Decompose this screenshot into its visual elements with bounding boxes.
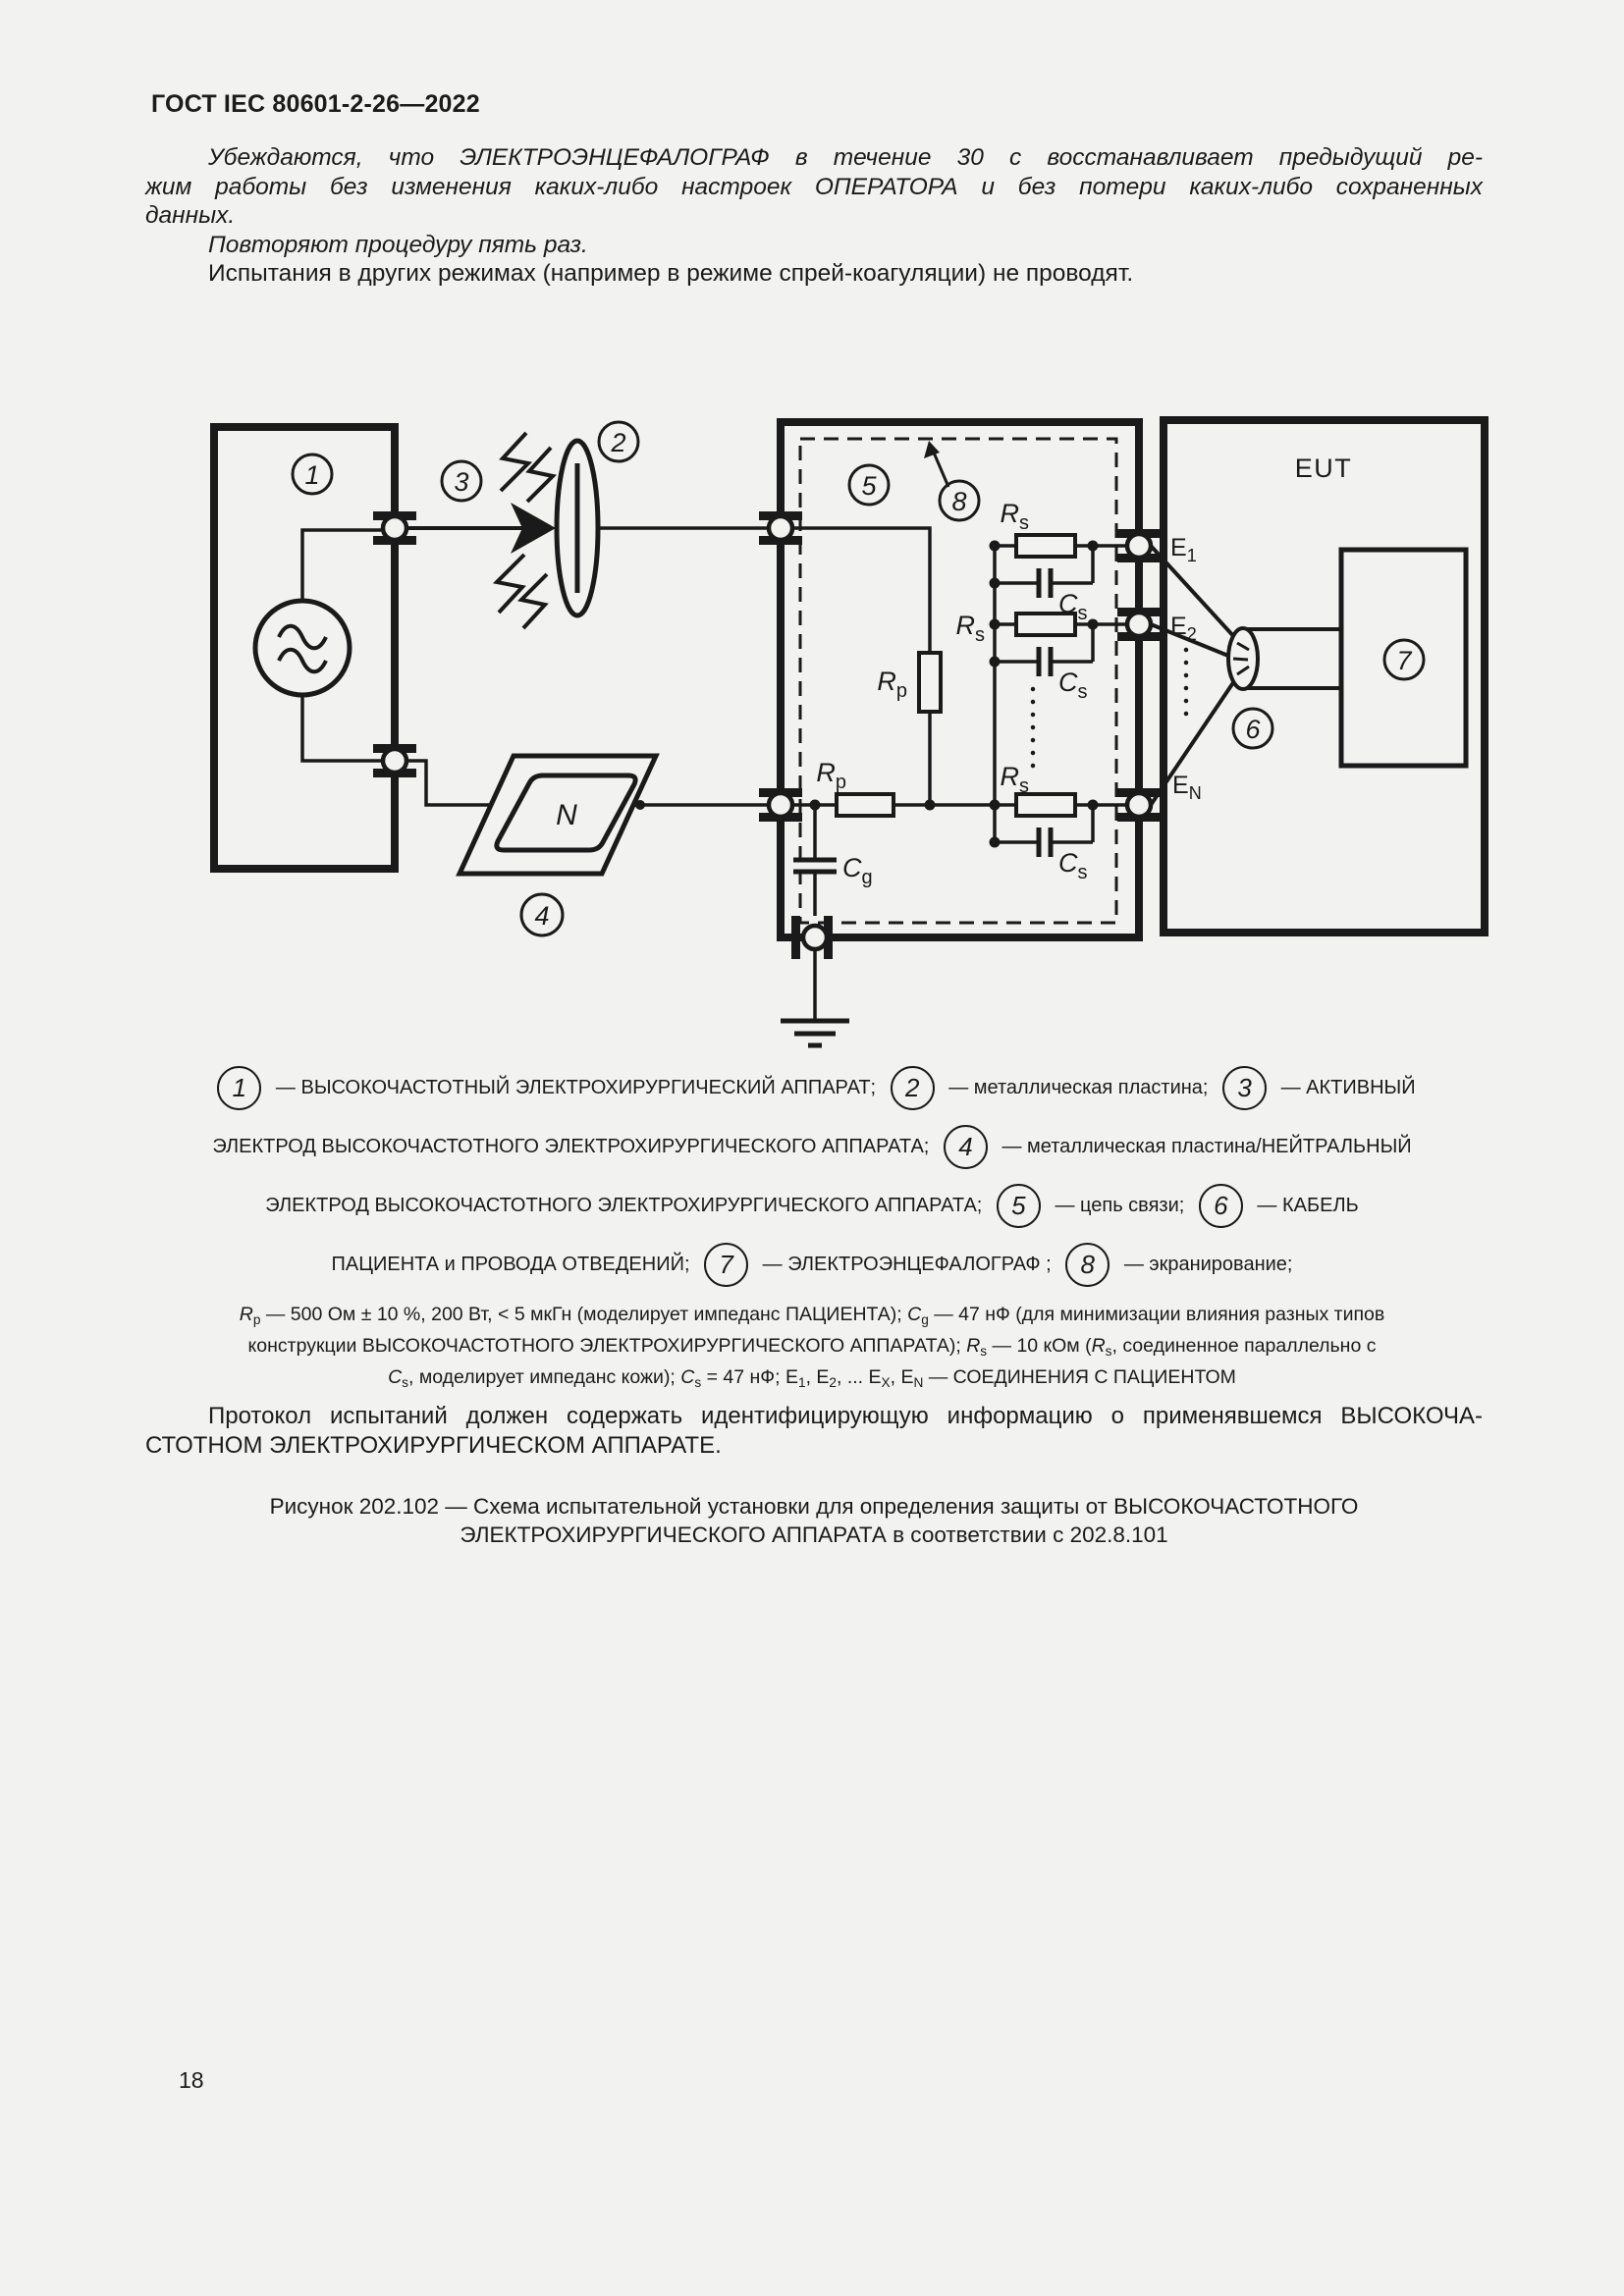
capacitor-cs-icon: [1039, 828, 1051, 857]
parameters-line: Cs, моделирует импеданс кожи); Cs = 47 н…: [137, 1364, 1487, 1396]
capacitor-cg-icon: [793, 860, 837, 872]
rs-label: Rs: [1001, 762, 1030, 797]
legend-callout-4: 4: [944, 1125, 988, 1169]
legend-callout-3: 3: [1222, 1066, 1267, 1110]
parameters-line: Rp — 500 Ом ± 10 %, 200 Вт, < 5 мкГн (мо…: [137, 1302, 1487, 1333]
svg-text:4: 4: [534, 901, 549, 931]
cg-ground-branch: [781, 805, 849, 1045]
legend-callout-2: 2: [891, 1066, 935, 1110]
protocol-paragraph: Протокол испытаний должен содержать иден…: [145, 1402, 1483, 1461]
rs-label: Rs: [1001, 499, 1030, 534]
active-electrode-arrow-icon: [406, 503, 556, 554]
legend-row: ЭЛЕКТРОД ВЫСОКОЧАСТОТНОГО ЭЛЕКТРОХИРУРГИ…: [59, 1176, 1565, 1235]
legend-callout-5: 5: [997, 1184, 1041, 1228]
feedthrough-capacitor-icon: [791, 916, 833, 959]
legend-callout-8: 8: [1065, 1243, 1110, 1287]
ac-source-icon: [255, 601, 350, 695]
wire: [792, 528, 930, 653]
callout-4: 4: [521, 894, 563, 935]
patient-cable-icon: [1151, 546, 1341, 805]
document-page: ГОСТ IEC 80601-2-26—2022 Убеждаются, что…: [0, 0, 1624, 2296]
legend-text: — АКТИВНЫЙ: [1275, 1077, 1416, 1099]
eut-label: EUT: [1295, 454, 1353, 483]
svg-text:2: 2: [610, 428, 625, 457]
capacitor-cs-icon: [1039, 568, 1051, 598]
eut-box: [1164, 420, 1485, 933]
callout-8: 8: [940, 481, 979, 520]
paragraph-line: Протокол испытаний должен содержать иден…: [145, 1402, 1483, 1431]
e2-label: E2: [1170, 613, 1197, 644]
callout-2: 2: [599, 422, 638, 461]
rp-label: Rp: [877, 667, 907, 702]
callout-3: 3: [442, 461, 481, 501]
legend-text: ЭЛЕКТРОД ВЫСОКОЧАСТОТНОГО ЭЛЕКТРОХИРУРГИ…: [265, 1195, 988, 1217]
svg-text:8: 8: [951, 487, 966, 516]
shield-pointer-arrow: [924, 441, 948, 487]
legend-row: 1 — ВЫСОКОЧАСТОТНЫЙ ЭЛЕКТРОХИРУРГИЧЕСКИЙ…: [59, 1058, 1565, 1117]
callout-7: 7: [1384, 640, 1424, 679]
figure-caption: Рисунок 202.102 — Схема испытательной ус…: [145, 1492, 1483, 1549]
legend-row: ЭЛЕКТРОД ВЫСОКОЧАСТОТНОГО ЭЛЕКТРОХИРУРГИ…: [59, 1117, 1565, 1176]
resistor-rp-horizontal: [837, 794, 893, 816]
legend-text: — цепь связи;: [1050, 1195, 1190, 1217]
ground-icon: [781, 1021, 849, 1045]
callout-5: 5: [849, 465, 889, 505]
resistor-rp-vertical: [919, 653, 941, 712]
en-label: EN: [1172, 772, 1202, 803]
n-plate-label: N: [556, 799, 577, 831]
legend-text: — экранирование;: [1118, 1254, 1292, 1276]
rs-label: Rs: [956, 611, 986, 646]
caption-line: Рисунок 202.102 — Схема испытательной ус…: [145, 1492, 1483, 1521]
callout-1: 1: [293, 454, 332, 494]
cs-label: Cs: [1058, 667, 1088, 703]
wire: [406, 761, 491, 805]
metal-plate-icon: [557, 441, 598, 615]
cs-label: Cs: [1058, 848, 1088, 883]
legend-callout-6: 6: [1199, 1184, 1243, 1228]
callout-6: 6: [1233, 709, 1272, 748]
legend-callout-1: 1: [217, 1066, 261, 1110]
legend-text: — ЭЛЕКТРОЭНЦЕФАЛОГРАФ ;: [757, 1254, 1056, 1276]
component-parameters: Rp — 500 Ом ± 10 %, 200 Вт, < 5 мкГн (мо…: [137, 1302, 1487, 1395]
svg-text:1: 1: [304, 460, 319, 490]
junction-dot: [635, 800, 645, 810]
legend-text: — ВЫСОКОЧАСТОТНЫЙ ЭЛЕКТРОХИРУРГИЧЕСКИЙ А…: [270, 1077, 881, 1099]
e1-label: E1: [1170, 534, 1197, 565]
resistor-rs: [1016, 535, 1075, 557]
rp-label: Rp: [816, 758, 846, 793]
legend-callout-7: 7: [704, 1243, 748, 1287]
legend-row: ПАЦИЕНТА и ПРОВОДА ОТВЕДЕНИЙ; 7 — ЭЛЕКТР…: [59, 1235, 1565, 1294]
resistor-rs: [1016, 794, 1075, 816]
svg-text:3: 3: [454, 467, 468, 497]
parameters-line: конструкции ВЫСОКОЧАСТОТНОГО ЭЛЕКТРОХИРУ…: [137, 1333, 1487, 1364]
legend-text: ПАЦИЕНТА и ПРОВОДА ОТВЕДЕНИЙ;: [332, 1254, 696, 1276]
capacitor-cs-icon: [1039, 647, 1051, 676]
legend-text: — металлическая пластина/НЕЙТРАЛЬНЫЙ: [997, 1136, 1412, 1158]
caption-line: ЭЛЕКТРОХИРУРГИЧЕСКОГО АППАРАТА в соответ…: [145, 1521, 1483, 1549]
svg-text:5: 5: [861, 471, 877, 501]
legend-text: — металлическая пластина;: [944, 1077, 1214, 1099]
legend-text: — КАБЕЛЬ: [1252, 1195, 1359, 1217]
svg-text:7: 7: [1396, 646, 1412, 675]
cg-label: Cg: [842, 853, 873, 888]
page-number: 18: [179, 2067, 204, 2094]
figure-legend: 1 — ВЫСОКОЧАСТОТНЫЙ ЭЛЕКТРОХИРУРГИЧЕСКИЙ…: [59, 1058, 1565, 1294]
svg-text:6: 6: [1245, 715, 1261, 744]
paragraph-line: СТОТНОМ ЭЛЕКТРОХИРУРГИЧЕСКОМ АППАРАТЕ.: [145, 1431, 1483, 1461]
legend-text: ЭЛЕКТРОД ВЫСОКОЧАСТОТНОГО ЭЛЕКТРОХИРУРГИ…: [212, 1136, 935, 1158]
